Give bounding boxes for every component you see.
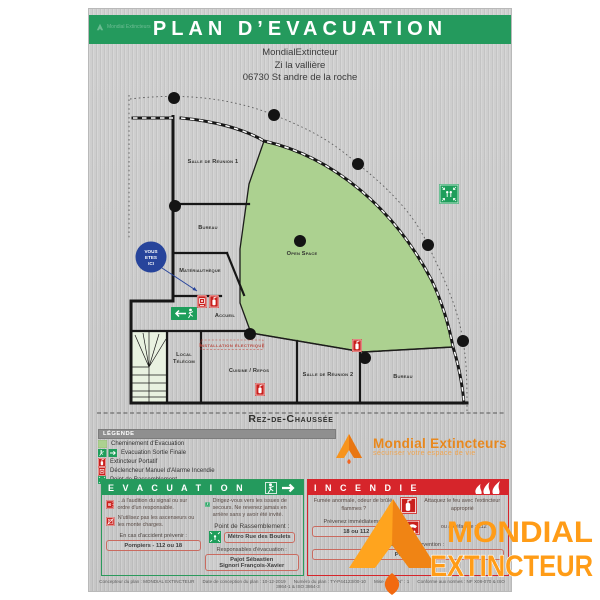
room-label-accueil: Accueil bbox=[215, 313, 236, 319]
exit-final-icon bbox=[98, 449, 117, 457]
assembly-point-icon bbox=[439, 184, 459, 204]
alarm-signal-icon bbox=[106, 498, 114, 511]
watermark-text: Mondial Extincteurs bbox=[107, 24, 151, 30]
you-are-here-badge: VOUS ETES ICI bbox=[136, 242, 198, 292]
running-man-icon bbox=[205, 498, 210, 511]
accident-label: En cas d'accident prévenir : bbox=[106, 533, 201, 539]
responsables-label: Responsables d'évacuation : bbox=[205, 547, 300, 553]
room-label-materiautheque: Matériauthèque bbox=[179, 268, 221, 274]
legend-item: Evacuation Sortie Finale bbox=[98, 449, 336, 457]
svg-text:ICI: ICI bbox=[148, 261, 154, 266]
flames-icon bbox=[474, 481, 502, 494]
evacuation-plan-poster: Mondial Extincteurs PLAN D’EVACUATION Mo… bbox=[0, 0, 600, 600]
legend-item: Extincteur Portatif bbox=[98, 458, 336, 466]
room-label-salle-reunion-2: Salle de Réunion 2 bbox=[303, 372, 354, 378]
evacuation-body: ...à l'audition du signal ou sur ordre d… bbox=[102, 495, 303, 574]
staircase bbox=[131, 331, 167, 403]
logo-line-2: EXTINCTEUR bbox=[430, 550, 593, 583]
extinguisher-icon bbox=[98, 458, 106, 467]
evacuation-panel: E V A C U A T I O N . bbox=[101, 479, 304, 576]
legend: LÉGENDE Cheminement d'Evacuation Evacuat… bbox=[98, 429, 336, 484]
evac-assembly-block: Point de Rassemblement : Métro Rue des B… bbox=[205, 522, 300, 543]
big-flame-icon bbox=[349, 499, 437, 595]
room-label-salle-reunion-1: Salle de Réunion 1 bbox=[188, 159, 239, 165]
responsables-value: Pajot Sébastien Signori François-Xavier bbox=[205, 554, 300, 571]
svg-text:VOUS: VOUS bbox=[144, 249, 157, 254]
address-line-3: 06730 St andre de la roche bbox=[89, 72, 511, 85]
legend-title: LÉGENDE bbox=[98, 429, 336, 439]
manual-alarm-icon bbox=[197, 295, 207, 308]
assembly-value: Métro Rue des Boulets bbox=[224, 532, 295, 543]
room-label-local-telecom-1: Local bbox=[176, 352, 192, 358]
extinguisher-icon-openspace bbox=[352, 339, 362, 352]
assembly-point-icon bbox=[209, 531, 221, 543]
room-label-cuisine-repos: Cuisine / Repos bbox=[229, 368, 269, 374]
title-bar: Mondial Extincteurs PLAN D’EVACUATION bbox=[89, 15, 511, 44]
open-space-area bbox=[240, 141, 453, 352]
evacuation-title: E V A C U A T I O N bbox=[108, 483, 246, 493]
evac-responsables-block: Responsables d'évacuation : Pajot Sébast… bbox=[205, 546, 300, 571]
floor-label: Rez-de-Chaussée bbox=[248, 413, 333, 424]
floor-plan: Salle de Réunion 1 Bureau Matériauthèque… bbox=[89, 89, 513, 424]
evac-step-signal: ...à l'audition du signal ou sur ordre d… bbox=[106, 498, 201, 512]
accident-value: Pompiers - 112 ou 18 bbox=[106, 540, 201, 551]
mondial-extincteur-logo: MONDIAL EXTINCTEUR bbox=[335, 494, 598, 597]
brand-name: Mondial Extincteurs bbox=[373, 437, 507, 450]
exit-sign-icon bbox=[171, 307, 197, 320]
flame-watermark-icon bbox=[96, 23, 104, 31]
brand-logo: Mondial Extincteurs sécuriser votre espa… bbox=[333, 430, 507, 464]
assembly-label: Point de Rassemblement : bbox=[205, 523, 300, 530]
extinguisher-icon-accueil bbox=[209, 295, 219, 308]
legend-item: Déclencheur Manuel d'Alarme Incendie bbox=[98, 467, 336, 475]
evac-step-exits: Dirigez-vous vers les issues de secours.… bbox=[205, 498, 300, 519]
room-label-bureau-1: Bureau bbox=[198, 225, 217, 231]
site-address: MondialExtincteur Zi la vallière 06730 S… bbox=[89, 47, 511, 85]
logo-line-1: MONDIAL bbox=[447, 516, 593, 549]
incendie-title: I N C E N D I E bbox=[314, 483, 420, 493]
address-line-1: MondialExtincteur bbox=[89, 47, 511, 60]
brand-tagline: sécuriser votre espace de vie bbox=[373, 450, 507, 457]
room-label-bureau-2: Bureau bbox=[393, 374, 412, 380]
mondial-extincteur-logo-svg: MONDIAL EXTINCTEUR bbox=[335, 494, 598, 597]
evacuation-header: E V A C U A T I O N bbox=[102, 480, 303, 495]
evac-accident-block: En cas d'accident prévenir : Pompiers - … bbox=[106, 532, 201, 551]
no-elevator-icon bbox=[106, 515, 115, 528]
page-title: PLAN D’EVACUATION bbox=[153, 18, 447, 41]
svg-text:ETES: ETES bbox=[145, 255, 157, 260]
room-label-installation-electrique: Installation électrique bbox=[199, 343, 265, 349]
brand-flame-icon bbox=[333, 430, 369, 464]
watermark-logo: Mondial Extincteurs bbox=[96, 23, 151, 31]
address-line-2: Zi la vallière bbox=[89, 60, 511, 73]
room-label-open-space: Open Space bbox=[287, 251, 318, 257]
evac-step-no-elevator: N'utilisez pas les ascenseurs ou les mon… bbox=[106, 515, 201, 529]
legend-item: Cheminement d'Evacuation bbox=[98, 440, 336, 448]
evacuation-path-swatch bbox=[98, 440, 107, 448]
manual-alarm-icon bbox=[98, 467, 106, 476]
incendie-header: I N C E N D I E bbox=[308, 480, 508, 495]
room-label-local-telecom-2: Télécom bbox=[173, 359, 195, 365]
extinguisher-icon-cuisine bbox=[255, 383, 265, 396]
exit-run-icon bbox=[265, 482, 297, 494]
